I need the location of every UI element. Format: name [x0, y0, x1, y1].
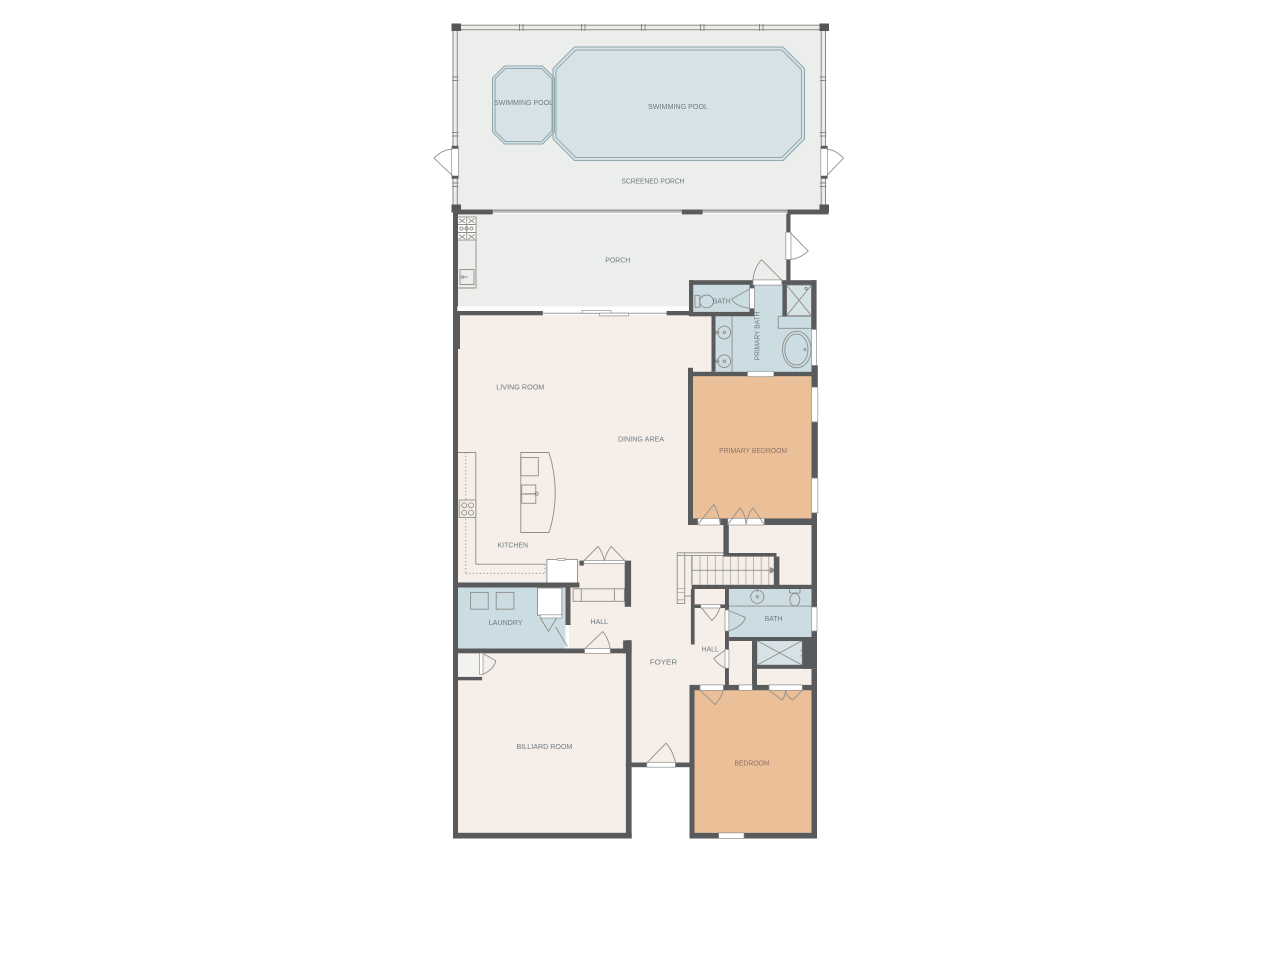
svg-text:LIVING ROOM: LIVING ROOM — [496, 382, 544, 391]
svg-text:PORCH: PORCH — [605, 255, 630, 264]
svg-text:SCREENED PORCH: SCREENED PORCH — [622, 177, 685, 186]
svg-text:SWIMMING POOL: SWIMMING POOL — [648, 102, 708, 111]
svg-text:DINING AREA: DINING AREA — [618, 435, 664, 444]
svg-text:BEDROOM: BEDROOM — [735, 758, 770, 767]
svg-text:FOYER: FOYER — [650, 658, 677, 667]
svg-text:HALL: HALL — [701, 644, 719, 653]
svg-text:HALL: HALL — [591, 617, 609, 626]
svg-text:PRIMARY BATH: PRIMARY BATH — [752, 312, 761, 361]
svg-text:BATH: BATH — [713, 296, 731, 305]
svg-text:LAUNDRY: LAUNDRY — [489, 618, 523, 627]
svg-text:KITCHEN: KITCHEN — [498, 541, 529, 550]
svg-text:PRIMARY BEDROOM: PRIMARY BEDROOM — [719, 446, 787, 455]
svg-text:SWIMMING POOL: SWIMMING POOL — [494, 98, 553, 107]
svg-text:BILLIARD ROOM: BILLIARD ROOM — [517, 742, 573, 751]
svg-text:BATH: BATH — [765, 614, 783, 623]
